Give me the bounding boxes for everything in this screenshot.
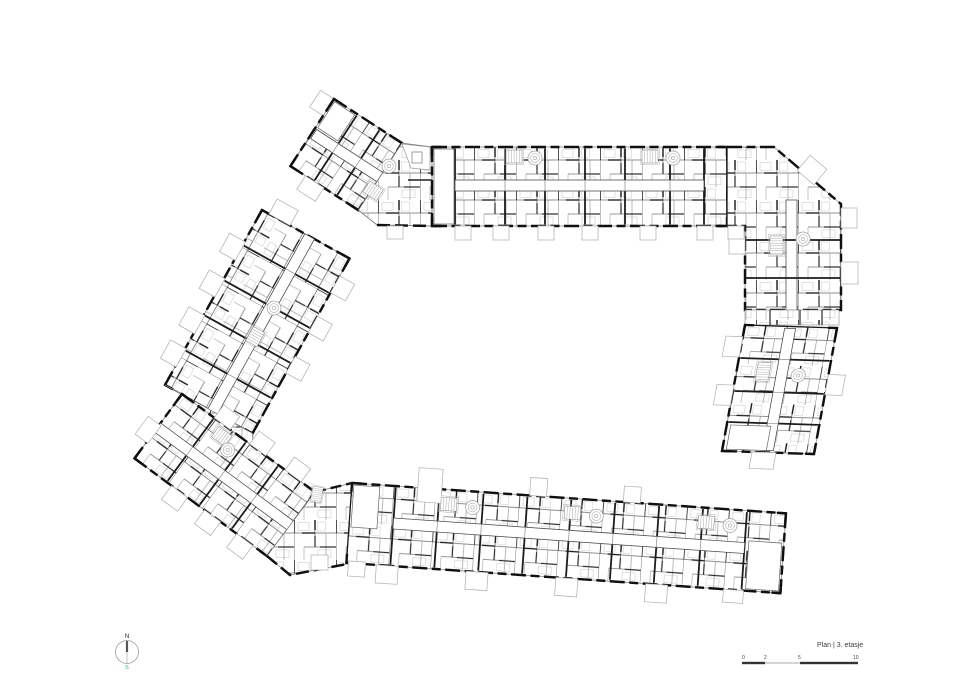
svg-text:S: S (125, 665, 129, 671)
svg-text:0: 0 (742, 655, 745, 661)
svg-text:5: 5 (798, 655, 801, 661)
svg-text:N: N (125, 633, 130, 640)
svg-text:10: 10 (853, 655, 859, 661)
svg-text:Plan | 3. etasje: Plan | 3. etasje (817, 642, 863, 649)
svg-text:2: 2 (764, 655, 767, 661)
